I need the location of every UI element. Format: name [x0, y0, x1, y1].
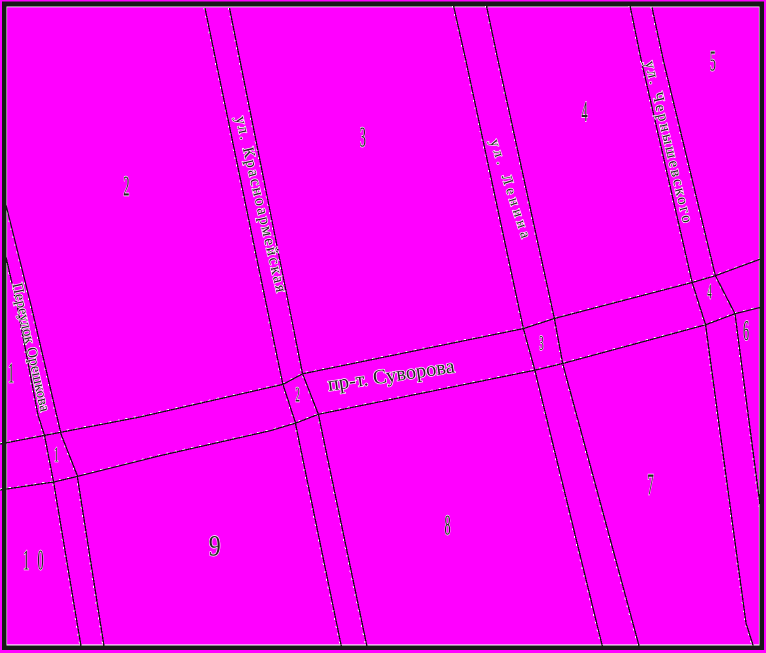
svg-text:4: 4 — [707, 281, 711, 303]
svg-text:9: 9 — [209, 529, 221, 562]
svg-text:2: 2 — [123, 169, 129, 202]
svg-text:0: 0 — [38, 543, 44, 576]
svg-text:4: 4 — [581, 95, 587, 128]
svg-text:1: 1 — [54, 445, 58, 467]
svg-text:8: 8 — [445, 508, 451, 541]
svg-text:3: 3 — [360, 120, 366, 153]
svg-text:7: 7 — [647, 468, 654, 502]
svg-text:5: 5 — [710, 44, 716, 77]
svg-text:6: 6 — [743, 314, 749, 347]
svg-text:1: 1 — [23, 543, 29, 576]
svg-text:2: 2 — [295, 385, 299, 407]
svg-text:1: 1 — [8, 357, 14, 390]
svg-text:3: 3 — [539, 333, 543, 355]
